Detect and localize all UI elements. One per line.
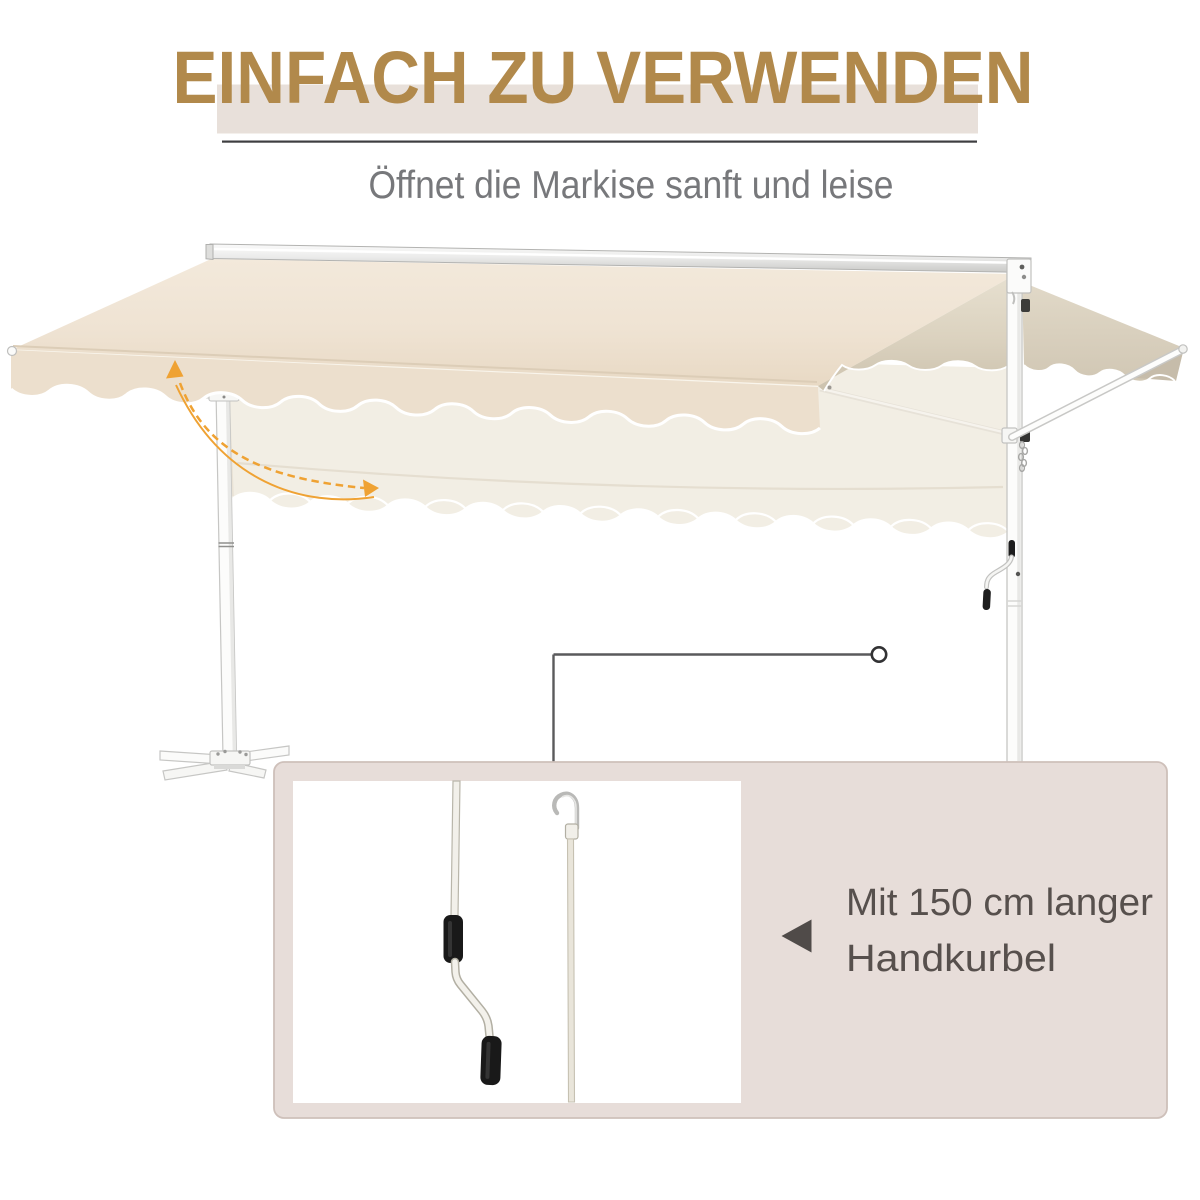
svg-text:EINFACH ZU VERWENDEN: EINFACH ZU VERWENDEN	[173, 36, 1034, 119]
svg-text:Mit 150 cm langer: Mit 150 cm langer	[846, 882, 1153, 924]
svg-text:Öffnet die Markise sanft und l: Öffnet die Markise sanft und leise	[369, 164, 894, 207]
svg-text:Handkurbel: Handkurbel	[846, 938, 1056, 980]
